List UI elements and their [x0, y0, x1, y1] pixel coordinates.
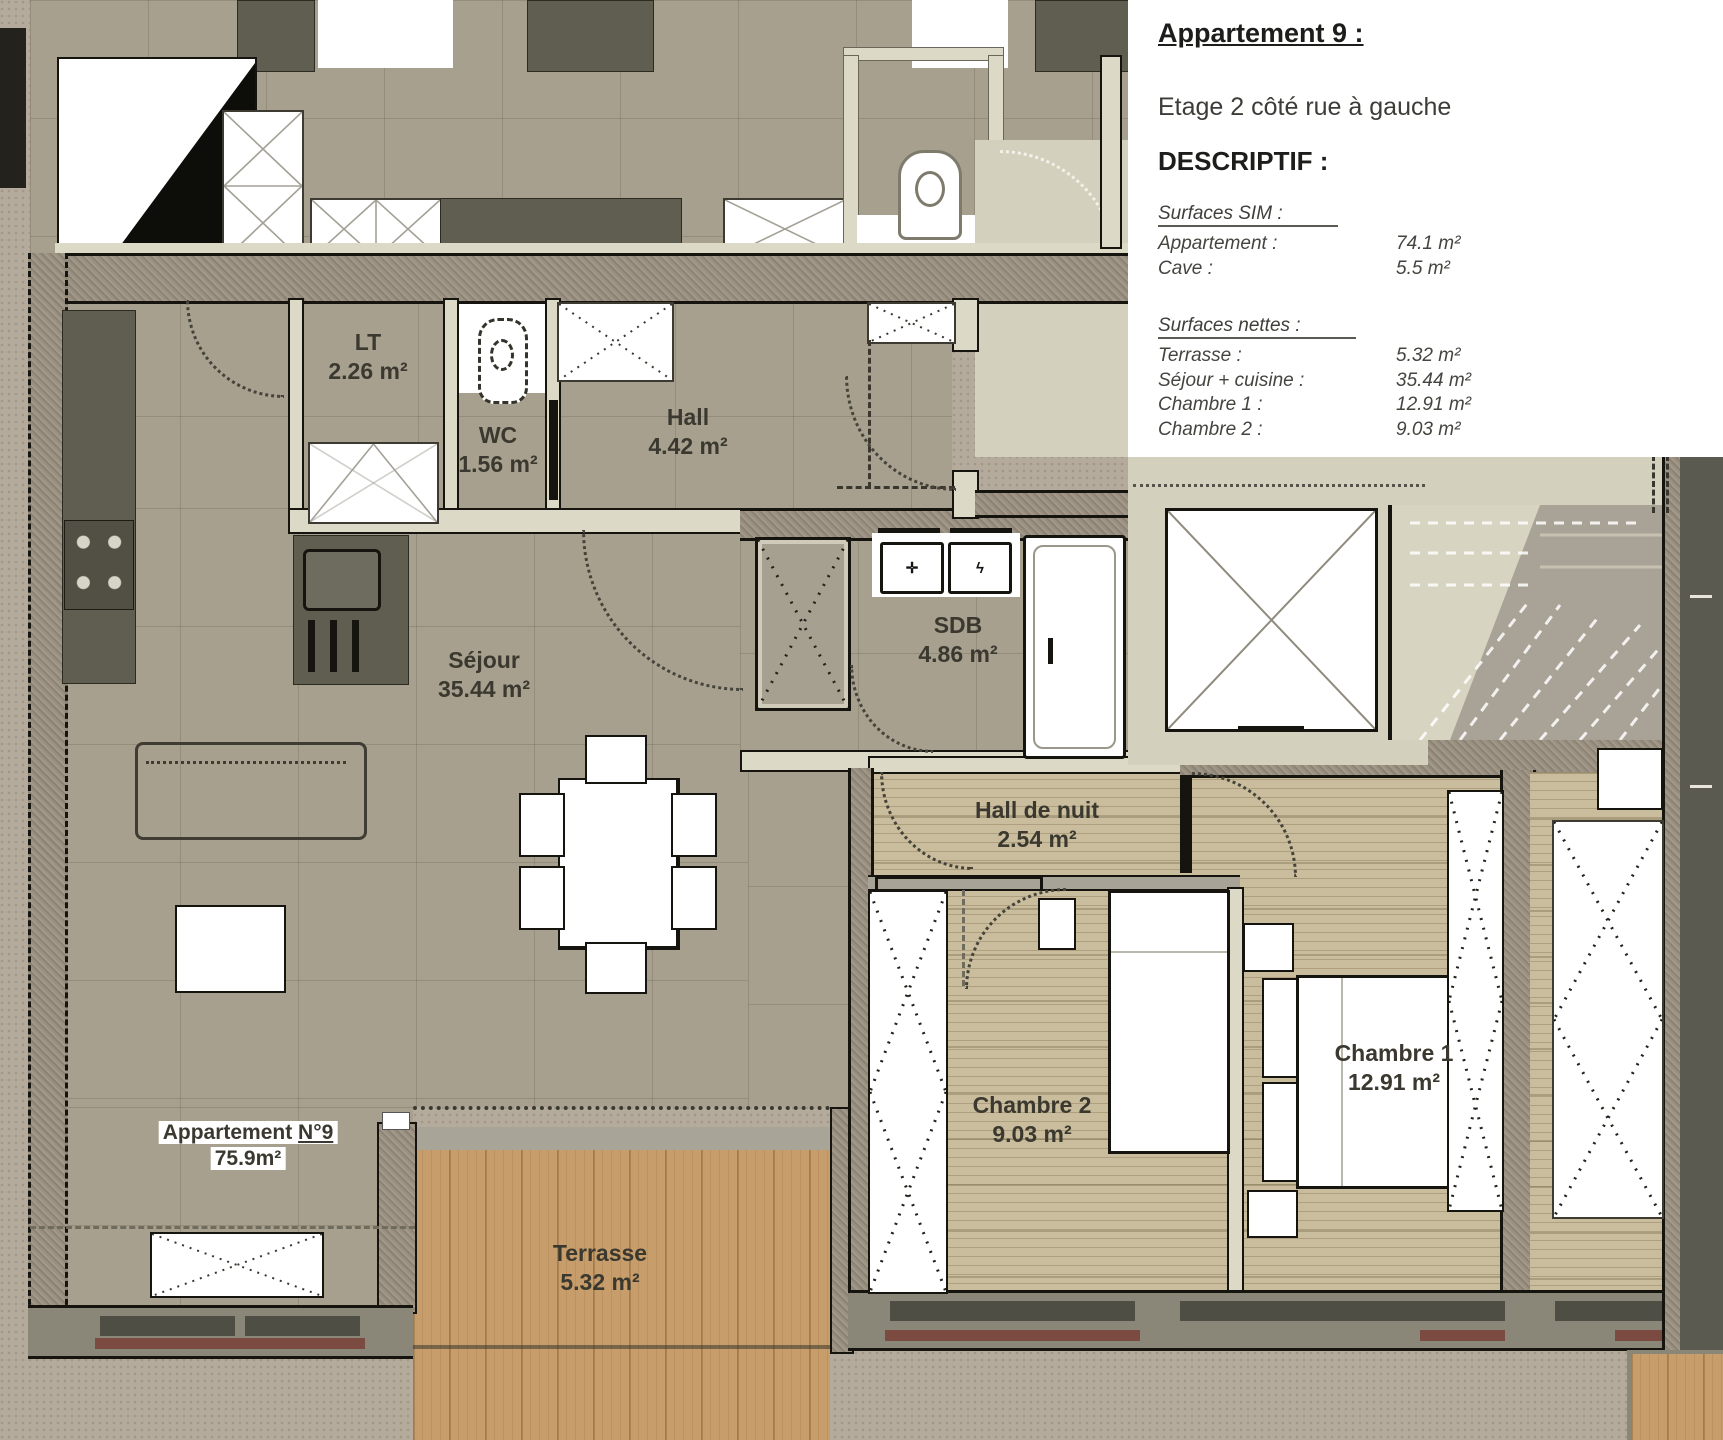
window-sill [240, 1338, 365, 1349]
room-area: 2.26 m² [328, 358, 407, 384]
neighbour-floor-patch [318, 0, 453, 68]
window [100, 1316, 235, 1336]
room-label-chambre2: Chambre 2 9.03 m² [973, 1091, 1092, 1149]
dimension-line [875, 876, 1043, 889]
chambre2-wardrobe-icon [868, 890, 948, 1294]
chambre1-wardrobe-icon [1447, 790, 1504, 1212]
surface-label: Cave : [1158, 257, 1396, 282]
room-label-sejour: Séjour 35.44 m² [438, 646, 530, 704]
landing-boundary-dotted [1133, 484, 1425, 487]
radiator-icon [150, 1232, 324, 1298]
chair-icon [519, 793, 565, 857]
adjacent-unit-mark [1690, 785, 1712, 788]
appliance-top-line [950, 528, 1012, 533]
info-subtitle: Etage 2 côté rue à gauche [1158, 93, 1723, 122]
room-label-terrasse: Terrasse 5.32 m² [553, 1239, 647, 1297]
surface-label: Séjour + cuisine : [1158, 369, 1396, 394]
apartment-area: 75.9m² [211, 1147, 286, 1170]
surface-label: Chambre 1 : [1158, 393, 1396, 418]
neighbour-wc-wall [843, 47, 1004, 61]
elevator-door [1238, 726, 1304, 732]
wall-dashed-marker [1666, 455, 1669, 513]
room-name: Terrasse [553, 1240, 647, 1266]
neighbour-right-wall [1100, 55, 1122, 249]
wall-lt-left [288, 298, 304, 514]
bathtub-icon [1023, 535, 1126, 759]
room-area: 4.86 m² [918, 641, 997, 667]
adjacent-unit-mark [1690, 595, 1712, 598]
stair-wall-line [1388, 505, 1392, 740]
bathtub-mark [1048, 638, 1053, 664]
sofa-back-line [146, 761, 346, 764]
room-area: 1.56 m² [458, 451, 537, 477]
apartment-name: Appartement N°9 [159, 1121, 338, 1144]
surface-label: Chambre 2 : [1158, 418, 1396, 443]
corner-terrace-patch [1627, 1350, 1723, 1440]
adjacent-unit-dark [1680, 455, 1723, 1350]
room-name: WC [479, 422, 517, 448]
room-area: 12.91 m² [1348, 1069, 1440, 1095]
info-panel: Appartement 9 : Etage 2 côté rue à gauch… [1128, 0, 1723, 457]
shower-icon [755, 537, 851, 711]
appliance-top-line [878, 528, 940, 533]
room-name: Chambre 1 [1335, 1040, 1454, 1066]
room-label-hall-de-nuit: Hall de nuit 2.54 m² [975, 796, 1099, 854]
entry-wall-upper [952, 298, 979, 352]
surface-value: 5.32 m² [1396, 344, 1460, 369]
chair-icon [671, 866, 717, 930]
dryer-icon: ϟ [948, 542, 1012, 594]
wall-dashed-marker [1652, 455, 1655, 513]
lt-wardrobe-icon [308, 442, 439, 524]
dish-rack-icon [308, 620, 372, 672]
toilet-bowl [915, 171, 945, 207]
hall-cabinet-icon [557, 302, 674, 382]
surface-label: Appartement : [1158, 232, 1396, 257]
room-label-lt: LT 2.26 m² [328, 328, 407, 386]
info-title: Appartement 9 : [1158, 18, 1723, 49]
window-sill [95, 1338, 240, 1349]
surface-value: 9.03 m² [1396, 418, 1460, 443]
bedroom-window-wall [848, 1290, 1530, 1351]
terrace-door-post [382, 1112, 410, 1130]
room-area: 4.42 m² [648, 433, 727, 459]
bed-headboard [1262, 1082, 1298, 1182]
terrace-side-wall [377, 1122, 417, 1314]
nightstand [1247, 1190, 1298, 1238]
sink-icon [303, 549, 381, 611]
elevator-icon [1165, 508, 1378, 732]
room-label-wc: WC 1.56 m² [458, 421, 537, 479]
chambre1-door-leaf [1180, 775, 1192, 873]
surface-row: Chambre 1 : 12.91 m² [1158, 393, 1723, 418]
surface-value: 12.91 m² [1396, 393, 1471, 418]
toilet-icon [478, 318, 528, 404]
kitchen-counter [62, 310, 136, 684]
surface-row: Appartement : 74.1 m² [1158, 232, 1723, 257]
chair-icon [585, 942, 647, 994]
tv-stand [175, 905, 286, 993]
entry-doormat-icon [867, 302, 956, 344]
toilet-bowl [490, 339, 514, 371]
surface-value: 74.1 m² [1396, 232, 1460, 257]
sejour-window-wall [28, 1305, 413, 1359]
room-area: 35.44 m² [438, 676, 530, 702]
surface-value: 5.5 m² [1396, 257, 1450, 282]
room-name: LT [355, 329, 381, 355]
window [1180, 1301, 1505, 1321]
surface-label: Terrasse : [1158, 344, 1396, 369]
surface-row: Cave : 5.5 m² [1158, 257, 1723, 282]
surface-row: Terrasse : 5.32 m² [1158, 344, 1723, 369]
balcony-overhang-dashed-line [30, 1226, 415, 1229]
surfaces-sim-heading: Surfaces SIM : [1158, 203, 1338, 227]
room-area: 2.54 m² [997, 826, 1076, 852]
nightstand [1243, 923, 1294, 972]
dining-table-icon [558, 778, 680, 950]
window-sill [1420, 1330, 1505, 1341]
room-name: SDB [934, 612, 983, 638]
bed-headboard [1262, 978, 1298, 1078]
toilet-icon [898, 150, 962, 240]
window [890, 1301, 1135, 1321]
terrace-threshold [413, 1127, 830, 1152]
room-label-chambre1: Chambre 1 12.91 m² [1335, 1039, 1454, 1097]
window-sill [885, 1330, 1140, 1341]
stairs-icon [1390, 505, 1662, 740]
surface-row: Chambre 2 : 9.03 m² [1158, 418, 1723, 443]
chair-icon [671, 793, 717, 857]
floor-plan: ✛ ϟ LT 2.26 m² WC 1.56 m² Hall 4.42 m² S… [0, 0, 1723, 1440]
neighbour-cabinet [527, 0, 654, 72]
surface-row: Séjour + cuisine : 35.44 m² [1158, 369, 1723, 394]
window [1555, 1301, 1665, 1321]
neighbour-dark-strip [0, 28, 26, 188]
neighbour-wardrobe-icon [222, 110, 304, 262]
window [245, 1316, 360, 1336]
right-unit-cabinet [1597, 748, 1663, 810]
room-area: 5.32 m² [560, 1269, 639, 1295]
apartment-number-label: Appartement N°9 75.9m² [159, 1120, 338, 1172]
stove-icon [64, 520, 134, 610]
nightstand [1038, 898, 1076, 950]
room-area: 9.03 m² [992, 1121, 1071, 1147]
chair-icon [585, 735, 647, 784]
room-label-sdb: SDB 4.86 m² [918, 611, 997, 669]
info-descriptif-heading: DESCRIPTIF : [1158, 146, 1723, 177]
surface-value: 35.44 m² [1396, 369, 1471, 394]
wc-door-leaf [549, 400, 558, 500]
surfaces-nettes-heading: Surfaces nettes : [1158, 315, 1356, 339]
room-name: Hall de nuit [975, 797, 1099, 823]
terrace-railing [413, 1106, 830, 1114]
washing-machine-icon: ✛ [880, 542, 944, 594]
sofa-icon [135, 742, 367, 840]
chair-icon [519, 866, 565, 930]
chambre2-bed-icon [1108, 890, 1230, 1154]
room-name: Chambre 2 [973, 1092, 1092, 1118]
main-top-wall [30, 253, 1180, 304]
right-unit-wardrobe-icon [1552, 820, 1664, 1219]
wall-lt-wc [443, 298, 459, 514]
room-name: Hall [667, 404, 709, 430]
landing-wall [975, 490, 1135, 518]
room-name: Séjour [448, 647, 520, 673]
bathtub-inner [1033, 545, 1116, 749]
room-label-hall: Hall 4.42 m² [648, 403, 727, 461]
chambre2-door-dashed [962, 890, 965, 986]
terrace-edge-line [413, 1345, 830, 1349]
bed-pillow-line [1111, 893, 1227, 953]
room-sejour-extension [748, 768, 848, 1107]
